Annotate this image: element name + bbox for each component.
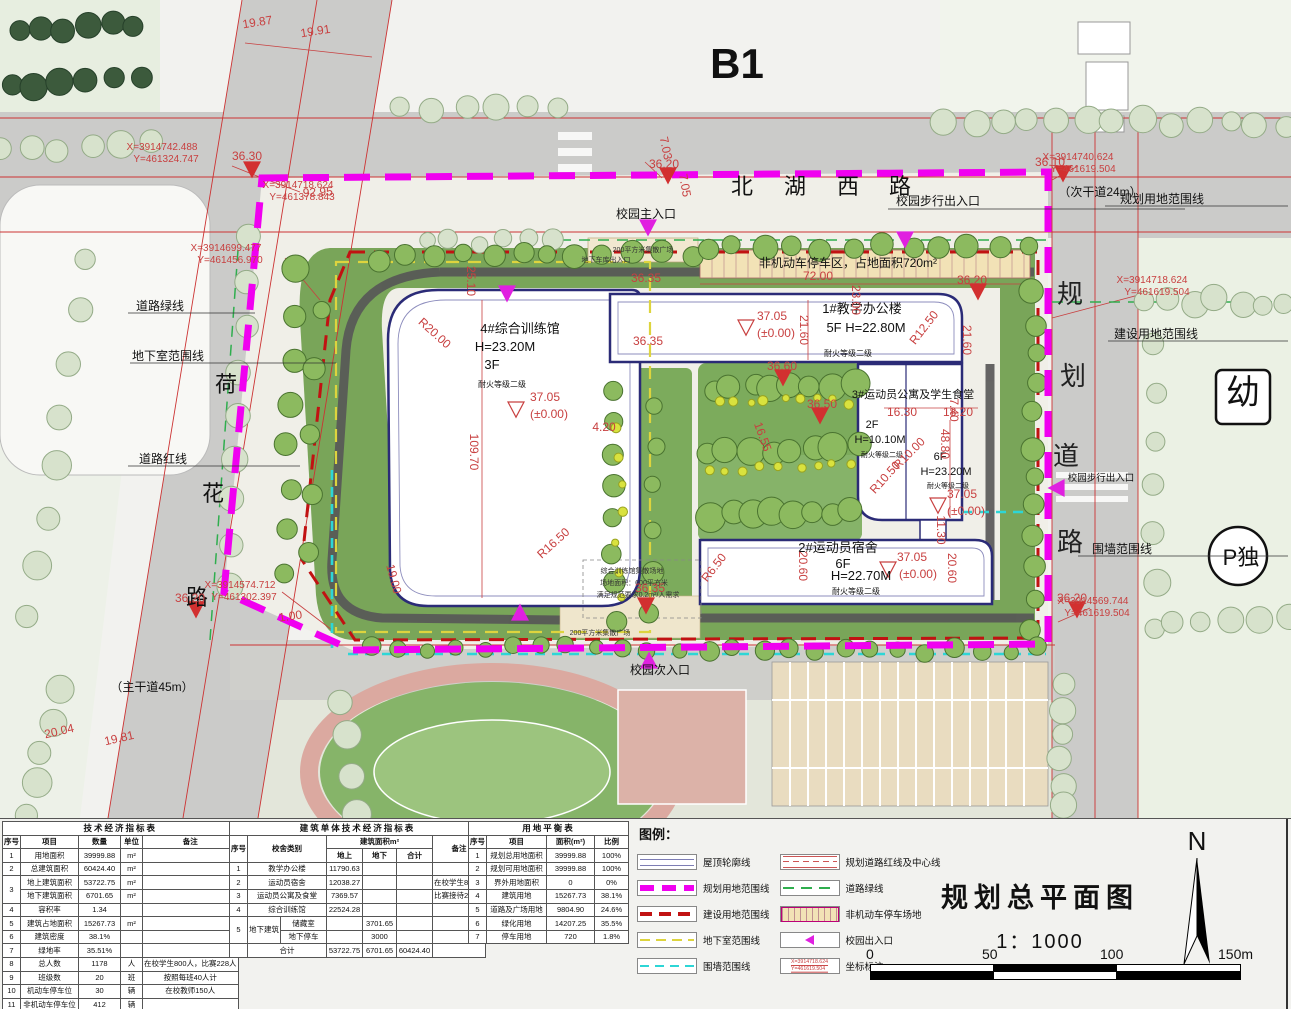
tree (538, 246, 555, 263)
table-cell: 建筑用地 (487, 889, 547, 903)
tree (302, 484, 322, 504)
table-cell: 机动车停车位 (21, 985, 79, 999)
scale-50: 50 (982, 946, 998, 962)
plan-annotation: 37.05 (757, 309, 787, 323)
plan-annotation: 37.05 (897, 550, 927, 564)
table-cell: 30 (79, 985, 121, 999)
tree (46, 68, 73, 95)
table-cell (143, 889, 239, 903)
tree (648, 438, 665, 455)
table-cell: 合计 (248, 944, 327, 958)
tree (104, 68, 124, 88)
tree (369, 250, 391, 272)
plan-annotation: X=3914718.624 (1117, 275, 1188, 286)
table-cell: 地下建筑面积 (21, 889, 79, 903)
tree (715, 397, 724, 406)
table-cell: 建筑面积m² (327, 835, 433, 849)
legend-swatch-yellow (637, 932, 697, 948)
tree (796, 394, 805, 403)
table-cell (121, 930, 143, 944)
table-cell: 3 (469, 876, 487, 890)
table-cell: m² (121, 862, 143, 876)
plan-annotation: 36.50 (807, 397, 837, 411)
table-cell: 界外用地面积 (487, 876, 547, 890)
plan-annotation: H=23.20M (920, 466, 971, 478)
table-cell: 5 (3, 917, 21, 931)
tree (1161, 611, 1183, 633)
table-cell: 用地面积 (21, 849, 79, 863)
tree (69, 298, 93, 322)
plan-annotation: 校园主入口 (616, 206, 676, 221)
legend-swatch-roadline (780, 854, 840, 870)
table-cell (143, 944, 239, 958)
tree (313, 302, 330, 319)
plan-annotation: 路 (1057, 527, 1083, 557)
table-cell: 运动员公寓及食堂 (248, 889, 327, 903)
tree (1144, 569, 1171, 596)
table-cell: 39999.88 (547, 849, 595, 863)
legend-item: 地下室范围线 (637, 927, 770, 953)
plan-annotation: H=10.10M (854, 434, 905, 446)
table-cell: 在校学生800人，比赛228人 (143, 957, 239, 971)
legend-swatch-cyan (637, 958, 697, 974)
table-cell: 4 (230, 903, 248, 917)
plan-annotation: 围墙范围线 (1092, 542, 1152, 556)
table-cell: 14207.25 (547, 917, 595, 931)
plan-annotation: 200平方米集散广场 (570, 628, 631, 637)
table-cell: 1 (230, 862, 248, 876)
tree (871, 233, 894, 256)
table-cell: 12038.27 (327, 876, 363, 890)
tree (282, 255, 309, 282)
table-cell (143, 876, 239, 890)
table-cell (143, 849, 239, 863)
tree (1047, 746, 1071, 770)
plan-annotation: 16.30 (887, 405, 917, 419)
table-cell (121, 903, 143, 917)
tree (20, 74, 47, 101)
tree (705, 466, 714, 475)
plan-annotation: 4.20 (592, 420, 616, 434)
legend-item: 建设用地范围线 (637, 901, 770, 927)
tree (1242, 113, 1267, 138)
tree (300, 425, 319, 444)
table-cell: 序号 (230, 835, 248, 862)
plan-annotation: 36.20 (175, 591, 205, 605)
legend-title: 图例： (639, 824, 909, 843)
table-cell: 建筑密度 (21, 930, 79, 944)
plan-annotation: 21.60 (797, 315, 811, 345)
legend-label: 校园出入口 (846, 933, 894, 947)
table-cell: 39999.88 (79, 849, 121, 863)
tree (275, 564, 294, 583)
tree (602, 544, 622, 564)
tree (1099, 109, 1123, 133)
plan-annotation: 校园步行出入口 (1068, 472, 1135, 484)
table-cell: 单位 (121, 835, 143, 849)
tree (75, 249, 95, 269)
table-cell: 4 (3, 903, 21, 917)
tree (1022, 525, 1043, 546)
table-cell: 38.1% (79, 930, 121, 944)
tree (281, 480, 301, 500)
tree (56, 352, 80, 376)
table-cell (397, 903, 433, 917)
plan-annotation: 校园步行出入口 (896, 193, 980, 208)
tree (646, 398, 662, 414)
legend-label: 规划道路红线及中心线 (846, 855, 941, 869)
table-cell: 24.6% (595, 903, 629, 917)
tree (47, 405, 72, 430)
tree (299, 543, 319, 563)
table-cell: 地下建筑 (248, 917, 281, 944)
tree (328, 690, 352, 714)
tree (1023, 494, 1044, 515)
plan-annotation: Y=461302.397 (211, 592, 277, 603)
tree (1146, 432, 1165, 451)
table-cell: 校舍类别 (248, 835, 327, 862)
table-cell: 7 (469, 930, 487, 944)
table-cell: 1178 (79, 957, 121, 971)
table-cell: 720 (547, 930, 595, 944)
tree (419, 98, 443, 122)
tree (604, 381, 623, 400)
plan-annotation: 21.60 (960, 325, 974, 355)
tree (514, 243, 534, 263)
plan-annotation: 36.35 (633, 334, 663, 348)
tree (76, 12, 102, 38)
tree (37, 507, 60, 530)
tree (1050, 792, 1076, 818)
tree (424, 246, 445, 267)
table-cell: 0% (595, 876, 629, 890)
plan-annotation: (±0.00) (947, 504, 985, 518)
tree (844, 400, 853, 409)
plan-annotation: 道路红线 (139, 451, 187, 466)
table-cell: 教学办公楼 (248, 862, 327, 876)
table-cell: 班级数 (21, 971, 79, 985)
plan-annotation: X=3914742.488 (127, 142, 198, 153)
tree (930, 109, 956, 135)
site-plan-sheet: B1北湖西路（次干道24m）规划用地范围线校园步行出入口校园主入口200平方米集… (0, 0, 1291, 1009)
tree (1147, 383, 1167, 403)
scale-100: 100 (1100, 946, 1123, 962)
table-cell: 地上 (327, 849, 363, 863)
plan-annotation: 耐火等级二级 (824, 348, 872, 358)
table-cell: 绿化用地 (487, 917, 547, 931)
tree (395, 245, 416, 266)
tree (46, 675, 74, 703)
scale-0: 0 (866, 946, 874, 962)
legend-label: 规划用地范围线 (703, 881, 770, 895)
table-cell: 3 (3, 876, 21, 903)
tree (712, 437, 737, 462)
table-cell: 辆 (121, 985, 143, 999)
table-cell: 备注 (143, 835, 239, 849)
plan-annotation: 36.20 (1057, 591, 1087, 605)
table-cell: 53722.75 (327, 944, 363, 958)
tree (838, 498, 862, 522)
tree (1142, 474, 1164, 496)
table-cell: 8 (3, 957, 21, 971)
table-cell (397, 930, 433, 944)
tree (1015, 109, 1037, 131)
table-cell (397, 889, 433, 903)
table-cell (143, 917, 239, 931)
table-cell: 规划可用地面积 (487, 862, 547, 876)
plan-annotation: 18.20 (943, 405, 973, 419)
legend-swatch-magenta (637, 880, 697, 896)
tree (494, 230, 511, 247)
table-cell: 3000 (363, 930, 397, 944)
tree (390, 97, 409, 116)
table-cell: 3 (230, 889, 248, 903)
plan-annotation: 48.80 (938, 429, 952, 459)
plan-annotation: 地下车库出入口 (582, 255, 631, 264)
tree (614, 453, 623, 462)
plan-annotation: 耐火等级二级 (832, 586, 880, 596)
tree (1201, 284, 1227, 310)
plan-annotation: H=22.70M (831, 568, 891, 583)
plan-annotation: 5F H=22.80M (826, 320, 905, 335)
legend-label: 非机动车停车场地 (846, 907, 922, 921)
table-cell: 地下停车 (281, 930, 327, 944)
table-cell: 1.8% (595, 930, 629, 944)
tree (1026, 316, 1047, 337)
tree (798, 464, 806, 472)
legend-label: 围墙范围线 (703, 959, 751, 973)
plan-annotation: 109.70 (467, 434, 481, 471)
table-cell: 数量 (79, 835, 121, 849)
plan-annotation: 2F (866, 419, 879, 431)
plan-annotation: 耐火等级二级 (478, 379, 526, 389)
tree (1044, 108, 1069, 133)
plan-annotation: P独 (1223, 545, 1260, 570)
plan-annotation: 荷 (215, 372, 237, 397)
table-cell (397, 862, 433, 876)
drawing-title: 规划总平面图 (912, 876, 1168, 915)
tree (619, 481, 626, 488)
tree (1190, 612, 1210, 632)
tree (729, 397, 738, 406)
table-cell: 35.5% (595, 917, 629, 931)
tree (2, 75, 22, 95)
table-cell (143, 862, 239, 876)
plan-annotation: 36.30 (232, 149, 262, 163)
tree (1053, 724, 1073, 744)
table-cell: 建筑占地面积 (21, 917, 79, 931)
legend-swatch-entry (780, 932, 840, 948)
plan-annotation: B1 (710, 40, 764, 87)
plan-annotation: （主干道45m） (110, 680, 193, 694)
table-cell: 辆 (121, 998, 143, 1009)
plan-annotation: 4#综合训练馆 (480, 321, 559, 336)
table-title: 用地平衡表 (469, 822, 629, 836)
table-cell: 2 (3, 862, 21, 876)
tree (990, 237, 1011, 258)
table-cell (397, 876, 433, 890)
tree (1020, 237, 1038, 255)
table-cell: 地上建筑面积 (21, 876, 79, 890)
plan-annotation: X=3914574.712 (205, 580, 276, 591)
plan-annotation: 25.10 (464, 266, 478, 296)
tree (847, 460, 856, 469)
tree (28, 741, 51, 764)
table-cell: 60424.40 (397, 944, 433, 958)
plan-annotation: 划 (1060, 361, 1086, 391)
tree (802, 502, 823, 523)
table-cell: 绿地率 (21, 944, 79, 958)
tree (73, 68, 97, 92)
table-cell: 5 (469, 903, 487, 917)
plan-annotation: 规划用地范围线 (1120, 191, 1204, 206)
tree (618, 507, 627, 516)
table-cell: 6 (469, 917, 487, 931)
table-cell: 2 (230, 876, 248, 890)
tree (1022, 401, 1042, 421)
sheet-frame (1286, 819, 1288, 1009)
tree (738, 467, 747, 476)
plan-annotation: 92.95 (302, 184, 333, 200)
plan-annotation: 11.30 (934, 515, 948, 544)
tree (1159, 114, 1183, 138)
tree (339, 764, 365, 790)
table-cell: 停车用地 (487, 930, 547, 944)
table-cell: 合计 (397, 849, 433, 863)
tree (1222, 112, 1241, 131)
legend-item: 围墙范围线 (637, 953, 770, 979)
plan-annotation: 北 (731, 174, 753, 199)
tree (1019, 279, 1043, 303)
tree (758, 396, 768, 406)
tree (284, 305, 306, 327)
tree (699, 239, 719, 259)
tree (992, 110, 1016, 134)
table-cell (363, 903, 397, 917)
tree (132, 67, 153, 88)
plan-annotation: 37.05 (530, 390, 560, 404)
table-cell (230, 944, 248, 958)
table-cell: 6701.65 (363, 944, 397, 958)
legend-item: 规划道路红线及中心线 (780, 849, 941, 875)
table-title: 技术经济指标表 (3, 822, 239, 836)
plan-annotation: H=23.20M (475, 339, 535, 354)
tree (748, 399, 755, 406)
table-cell: 11 (3, 998, 21, 1009)
plan-annotation: 规 (1057, 279, 1083, 309)
legend-swatch-red (637, 906, 697, 922)
table-cell (143, 903, 239, 917)
legend-swatch-green (780, 880, 840, 896)
plan-annotation: 道路绿线 (136, 298, 184, 313)
tree (278, 392, 303, 417)
table-cell: 35.51% (79, 944, 121, 958)
table-cell: 序号 (3, 835, 21, 849)
plan-annotation: 综合训练馆集散场地 (601, 566, 664, 575)
table-cell: 容积率 (21, 903, 79, 917)
tree (274, 433, 297, 456)
building-indicator-table: 建筑单体技术经济指标表序号校舍类别建筑面积m²备注地上地下合计1教学办公楼117… (229, 821, 486, 958)
table-cell: 序号 (469, 835, 487, 849)
table-cell: 412 (79, 998, 121, 1009)
tree (1026, 468, 1043, 485)
table-cell: 7369.57 (327, 889, 363, 903)
tree (1246, 607, 1273, 634)
tree (607, 612, 627, 632)
tree (1231, 292, 1256, 317)
table-cell (363, 862, 397, 876)
table-cell: 0 (547, 876, 595, 890)
plan-annotation: 36.20 (957, 273, 987, 287)
table-cell: m² (121, 889, 143, 903)
tree (1274, 294, 1291, 313)
table-cell: 综合训练馆 (248, 903, 327, 917)
tree (1253, 296, 1272, 315)
scale-150: 150m (1218, 946, 1253, 962)
table-cell (143, 930, 239, 944)
table-cell: 39999.88 (547, 862, 595, 876)
legend-swatch-hatch (780, 906, 840, 922)
legend-swatch-coord: X=3914718.624Y=461619.504 (780, 958, 840, 974)
table-cell: 9804.90 (547, 903, 595, 917)
table-cell: 4 (469, 889, 487, 903)
plan-annotation: (±0.00) (899, 567, 937, 581)
plan-annotation: (±0.00) (530, 407, 568, 421)
table-cell (121, 944, 143, 958)
land-balance-table: 用地平衡表序号项目面积(m²)比例1规划总用地面积39999.88100%2规划… (468, 821, 629, 944)
table-cell: m² (121, 917, 143, 931)
tree (778, 440, 801, 463)
title-block: 规划总平面图 1：1000 (912, 876, 1168, 954)
table-cell: 38.1% (595, 889, 629, 903)
tree (438, 229, 457, 248)
table-cell: 15267.73 (547, 889, 595, 903)
plan-annotation: Y=461456.970 (197, 255, 263, 266)
tree (798, 376, 819, 397)
tree (82, 135, 105, 158)
table-cell: 53722.75 (79, 876, 121, 890)
tree (1021, 438, 1045, 462)
plan-annotation: X=3914699.477 (191, 243, 262, 254)
table-cell (327, 917, 363, 931)
tree (102, 11, 125, 34)
tree (303, 358, 325, 380)
plan-annotation: 道 (1053, 441, 1079, 471)
tech-economic-table: 技术经济指标表序号项目数量单位备注1用地面积39999.88m²2总建筑面积60… (2, 821, 239, 1009)
table-cell: 10 (3, 985, 21, 999)
tree (644, 522, 661, 539)
tree (696, 503, 726, 533)
legend-swatch-roofline (637, 854, 697, 870)
table-cell: 100% (595, 862, 629, 876)
tree (45, 140, 68, 163)
table-cell: 项目 (21, 835, 79, 849)
tree (22, 768, 52, 798)
legend-label: 屋顶轮廓线 (703, 855, 751, 869)
tree (721, 468, 728, 475)
table-cell: 6 (3, 930, 21, 944)
table-cell: 100% (595, 849, 629, 863)
north-label: N (1188, 826, 1207, 856)
table-cell: 1 (3, 849, 21, 863)
plan-annotation: 36.10 (1035, 155, 1065, 169)
tree (23, 551, 52, 580)
plan-annotation: 花 (202, 481, 224, 506)
table-cell: 6701.65 (79, 889, 121, 903)
table-cell: 1 (469, 849, 487, 863)
tree (455, 244, 472, 261)
table-cell: 11790.63 (327, 862, 363, 876)
